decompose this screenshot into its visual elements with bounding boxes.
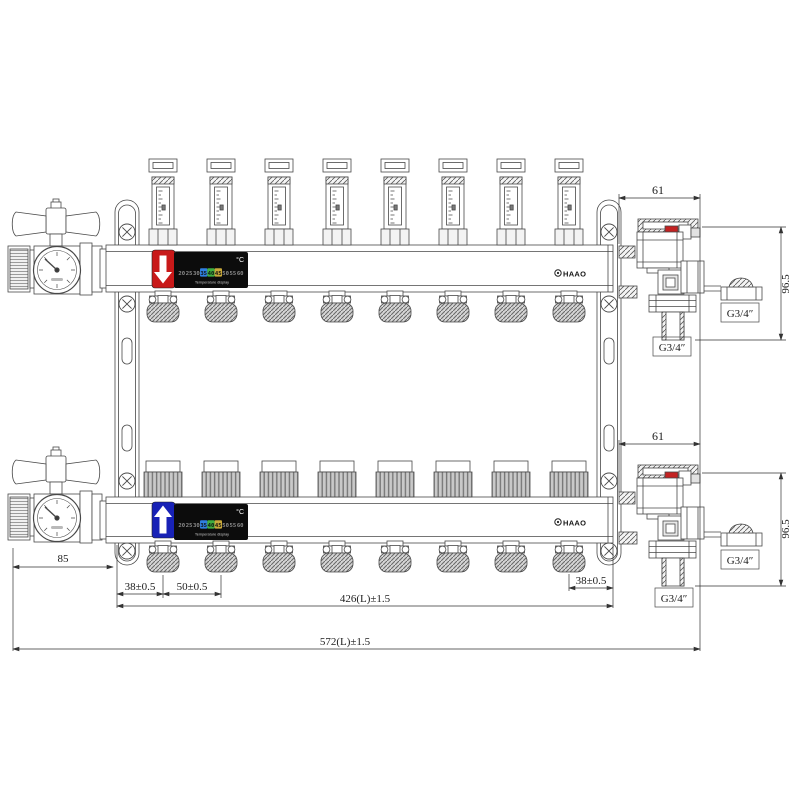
return-valve-cap xyxy=(260,461,298,497)
supply-outlet-connector xyxy=(553,291,585,322)
flow-meter xyxy=(265,159,293,245)
flow-meter xyxy=(555,159,583,245)
return-outlet-connector xyxy=(553,541,585,572)
return-valve-cap xyxy=(202,461,240,497)
drain-thread-label-bottom: G3/4″ xyxy=(661,593,688,605)
flow-meter xyxy=(381,159,409,245)
flow-meter xyxy=(323,159,351,245)
supply-outlet-connector xyxy=(205,291,237,322)
cap-thread-label-bottom: G3/4″ xyxy=(727,555,754,567)
return-outlet-connector xyxy=(495,541,527,572)
return-valve-cap-row xyxy=(144,461,588,497)
supply-outlet-connector xyxy=(495,291,527,322)
return-valve-cap xyxy=(492,461,530,497)
supply-outlet-connector xyxy=(437,291,469,322)
flow-meter xyxy=(497,159,525,245)
dim-85: 85 xyxy=(58,553,70,565)
return-outlet-connector xyxy=(437,541,469,572)
return-valve-cap xyxy=(550,461,588,497)
return-outlet-connector xyxy=(379,541,411,572)
return-valve-cap xyxy=(434,461,472,497)
supply-outlet-connector xyxy=(379,291,411,322)
dim-96-5-bottom: 96.5 xyxy=(780,519,792,539)
supply-outlet-row xyxy=(147,291,585,322)
brand-text: HAAO xyxy=(563,519,586,528)
flow-meter-row xyxy=(149,159,583,245)
dim-426: 426(L)±1.5 xyxy=(340,593,391,605)
supply-outlet-connector xyxy=(263,291,295,322)
bottom-air-vent-drain-assembly xyxy=(619,465,762,586)
brand-text: HAAO xyxy=(563,270,586,279)
return-outlet-connector xyxy=(147,541,179,572)
return-outlet-connector xyxy=(205,541,237,572)
supply-temperature-display xyxy=(174,252,248,288)
return-valve-cap xyxy=(376,461,414,497)
drawing-canvas: °C 202530354045505560 Temperature displa… xyxy=(0,0,800,800)
dim-61-bottom: 61 xyxy=(652,429,664,443)
return-outlet-connector xyxy=(263,541,295,572)
return-outlet-row xyxy=(147,541,585,572)
dim-61-top: 61 xyxy=(652,183,664,197)
drain-thread-label-top: G3/4″ xyxy=(659,342,686,354)
flow-meter xyxy=(439,159,467,245)
return-valve-cap xyxy=(144,461,182,497)
return-ball-valve xyxy=(8,447,108,543)
manifold-technical-drawing: °C 202530354045505560 Temperature displa… xyxy=(0,0,800,800)
return-valve-cap xyxy=(318,461,356,497)
supply-outlet-connector xyxy=(147,291,179,322)
flow-meter xyxy=(207,159,235,245)
flow-meter xyxy=(149,159,177,245)
dim-50: 50±0.5 xyxy=(177,581,208,593)
dim-38-left: 38±0.5 xyxy=(125,581,156,593)
dim-572: 572(L)±1.5 xyxy=(320,636,371,648)
dim-96-5-top: 96.5 xyxy=(780,274,792,294)
return-temperature-display xyxy=(174,504,248,540)
supply-outlet-connector xyxy=(321,291,353,322)
cap-thread-label-top: G3/4″ xyxy=(727,308,754,320)
return-outlet-connector xyxy=(321,541,353,572)
supply-ball-valve xyxy=(8,199,108,295)
dim-38-right: 38±0.5 xyxy=(576,575,607,587)
